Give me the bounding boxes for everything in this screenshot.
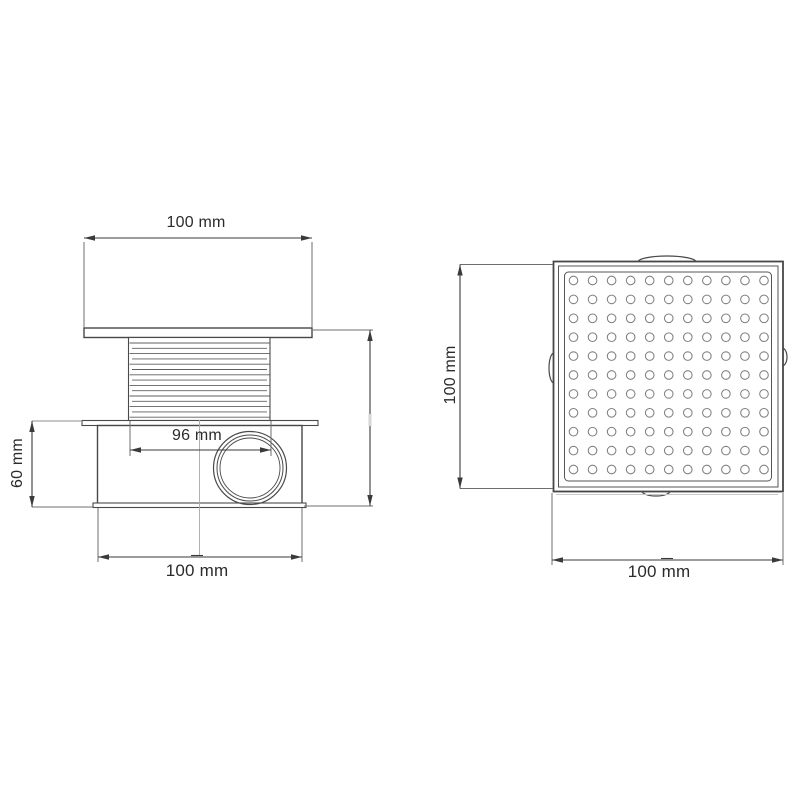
dim-top-view-width	[552, 493, 783, 565]
dim-label-top-view-width: 100 mm	[628, 562, 691, 582]
dim-side-bottom-width	[98, 508, 302, 562]
dim-label-thread-width: 96 mm	[172, 427, 222, 445]
top-view	[549, 256, 787, 496]
threaded-ring	[129, 338, 271, 421]
dim-body-height	[29, 421, 93, 507]
dim-label-top-view-height: 100 mm	[442, 346, 460, 405]
technical-drawing-canvas: 100 mm 96 mm 60 mm 100 mm 100 mm 100 mm	[0, 0, 800, 800]
grate-plate-side	[84, 328, 312, 338]
dim-side-height-right	[304, 330, 373, 506]
dim-label-side-top-width: 100 mm	[167, 214, 226, 232]
mounting-flange	[82, 421, 318, 426]
dim-label-body-height: 60 mm	[9, 438, 27, 488]
dim-side-top-width	[84, 235, 312, 328]
drawing-linework	[0, 0, 800, 800]
dim-label-side-bottom-width: 100 mm	[166, 561, 229, 581]
dim-top-view-height	[457, 265, 553, 489]
